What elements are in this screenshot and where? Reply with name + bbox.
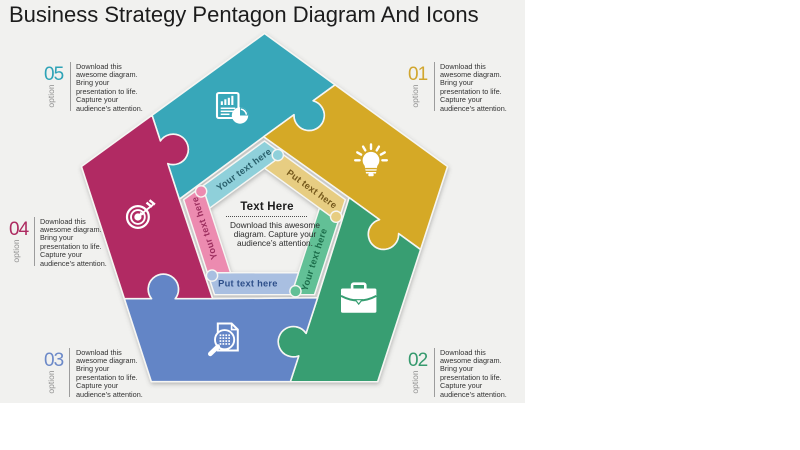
svg-text:Put text here: Put text here [218, 279, 278, 289]
